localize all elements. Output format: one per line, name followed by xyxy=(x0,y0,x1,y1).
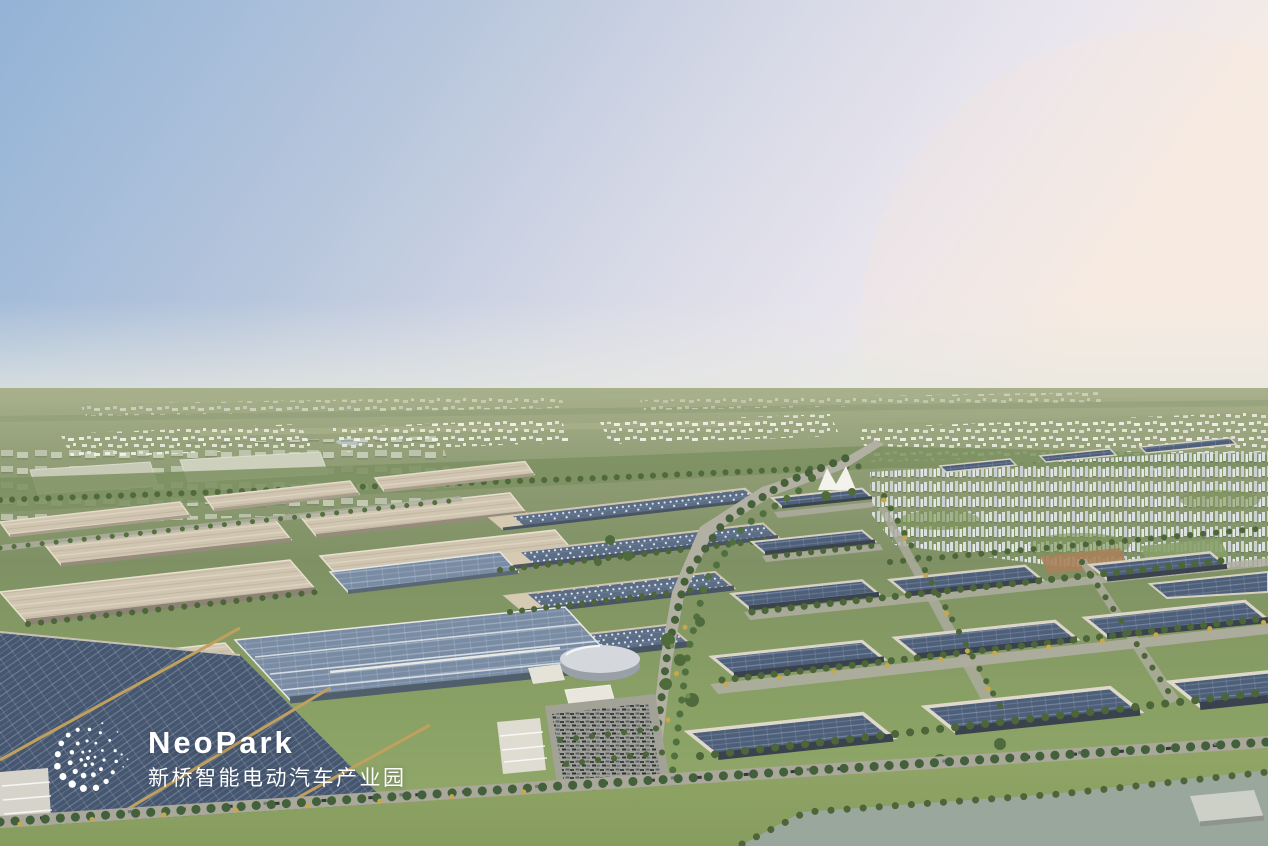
round-tank-roof xyxy=(560,645,640,673)
dotted-sphere-icon xyxy=(44,714,132,802)
neopark-aerial-render: NeoPark 新桥智能电动汽车产业园 xyxy=(0,0,1268,846)
horizon-haze xyxy=(0,300,1268,392)
logo-text: NeoPark 新桥智能电动汽车产业园 xyxy=(148,727,407,789)
logo-wordmark: NeoPark xyxy=(148,727,407,758)
neopark-logo: NeoPark 新桥智能电动汽车产业园 xyxy=(44,714,407,802)
logo-subtitle: 新桥智能电动汽车产业园 xyxy=(148,768,407,789)
